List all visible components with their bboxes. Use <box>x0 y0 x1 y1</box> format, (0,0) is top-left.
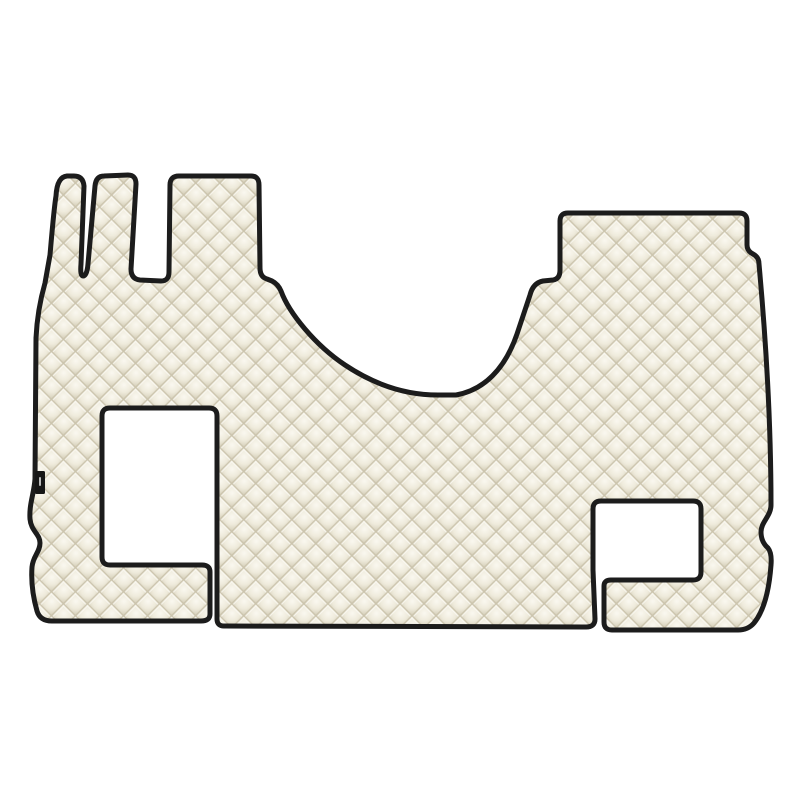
floor-mat <box>30 175 771 630</box>
product-photo <box>0 0 800 800</box>
floor-mat-shape <box>30 175 771 630</box>
photo-background <box>0 0 800 800</box>
brand-tag <box>35 471 45 494</box>
brand-tag-mark <box>39 477 41 486</box>
